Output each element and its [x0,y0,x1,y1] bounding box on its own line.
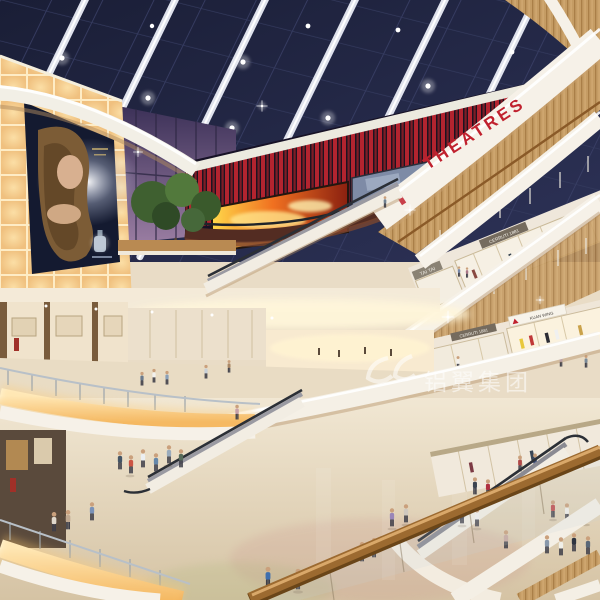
person [585,355,588,367]
scene-canvas: THEATRES TAI TAI CERRUTI 1881 TAI TAI CE… [0,0,600,600]
model-face [57,155,83,189]
mall-atrium-rendering: THEATRES TAI TAI CERRUTI 1881 TAI TAI CE… [0,0,600,600]
left-storefronts [0,302,128,366]
watermark-text: 铝翼集团 [424,369,532,395]
planter [118,240,236,252]
red-display-item [14,338,19,351]
